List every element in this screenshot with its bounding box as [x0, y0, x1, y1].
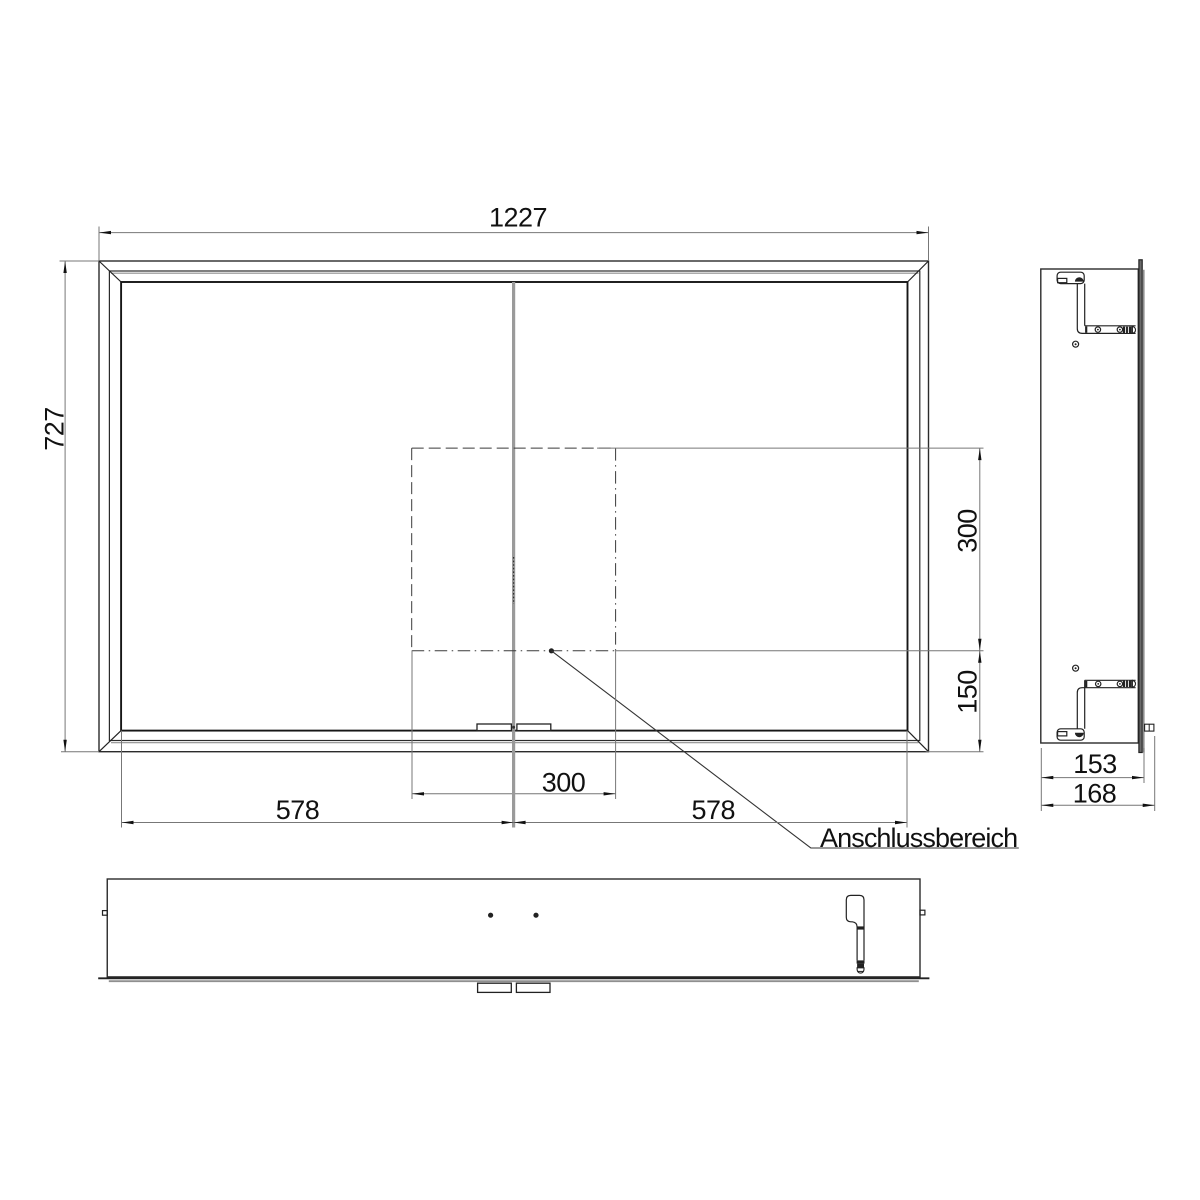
svg-text:578: 578 — [692, 795, 736, 825]
svg-text:Anschlussbereich: Anschlussbereich — [820, 823, 1017, 853]
svg-text:1227: 1227 — [489, 203, 547, 233]
svg-text:168: 168 — [1073, 779, 1117, 809]
svg-text:727: 727 — [40, 407, 70, 451]
svg-text:153: 153 — [1073, 749, 1117, 779]
svg-text:150: 150 — [953, 670, 983, 714]
svg-text:300: 300 — [953, 509, 983, 553]
svg-text:300: 300 — [542, 768, 586, 798]
svg-text:578: 578 — [276, 795, 320, 825]
